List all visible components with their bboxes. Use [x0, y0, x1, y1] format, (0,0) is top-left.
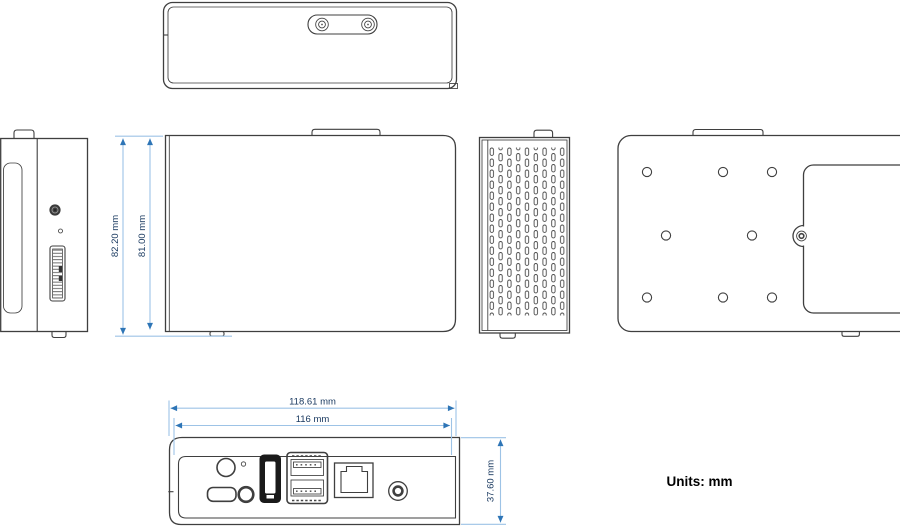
dimensional-drawing-page: 82.20 mm 81.00 mm: [0, 0, 900, 530]
left-side-view: [1, 130, 88, 338]
foot-tab: [842, 332, 859, 337]
rear-view: [618, 130, 900, 337]
dimensional-drawing: 82.20 mm 81.00 mm: [0, 0, 900, 530]
foot-tab: [210, 332, 224, 337]
height-outer-label: 82.20 mm: [110, 215, 121, 257]
units-label: Units: mm: [667, 474, 733, 489]
edge-connector: [50, 246, 65, 301]
depth-label: 37.60 mm: [486, 460, 497, 502]
foot-tab: [500, 333, 515, 338]
screw-icon: [49, 204, 60, 215]
mounting-tab: [312, 129, 380, 135]
foot-tab: [52, 332, 66, 338]
height-body-label: 81.00 mm: [137, 215, 148, 257]
hdmi-port: [260, 455, 282, 504]
vented-side-view: [480, 130, 570, 338]
width-body-label: 116 mm: [296, 414, 330, 425]
mounting-tab: [534, 130, 553, 137]
vent-grille: [490, 148, 568, 316]
mounting-tab: [14, 130, 34, 139]
width-outer-label: 118.61 mm: [289, 397, 336, 408]
top-view: [164, 3, 458, 89]
io-panel-view: [168, 438, 459, 525]
mounting-tab: [693, 130, 763, 136]
depth-dimension: 37.60 mm: [461, 438, 506, 525]
front-view: [166, 129, 456, 336]
